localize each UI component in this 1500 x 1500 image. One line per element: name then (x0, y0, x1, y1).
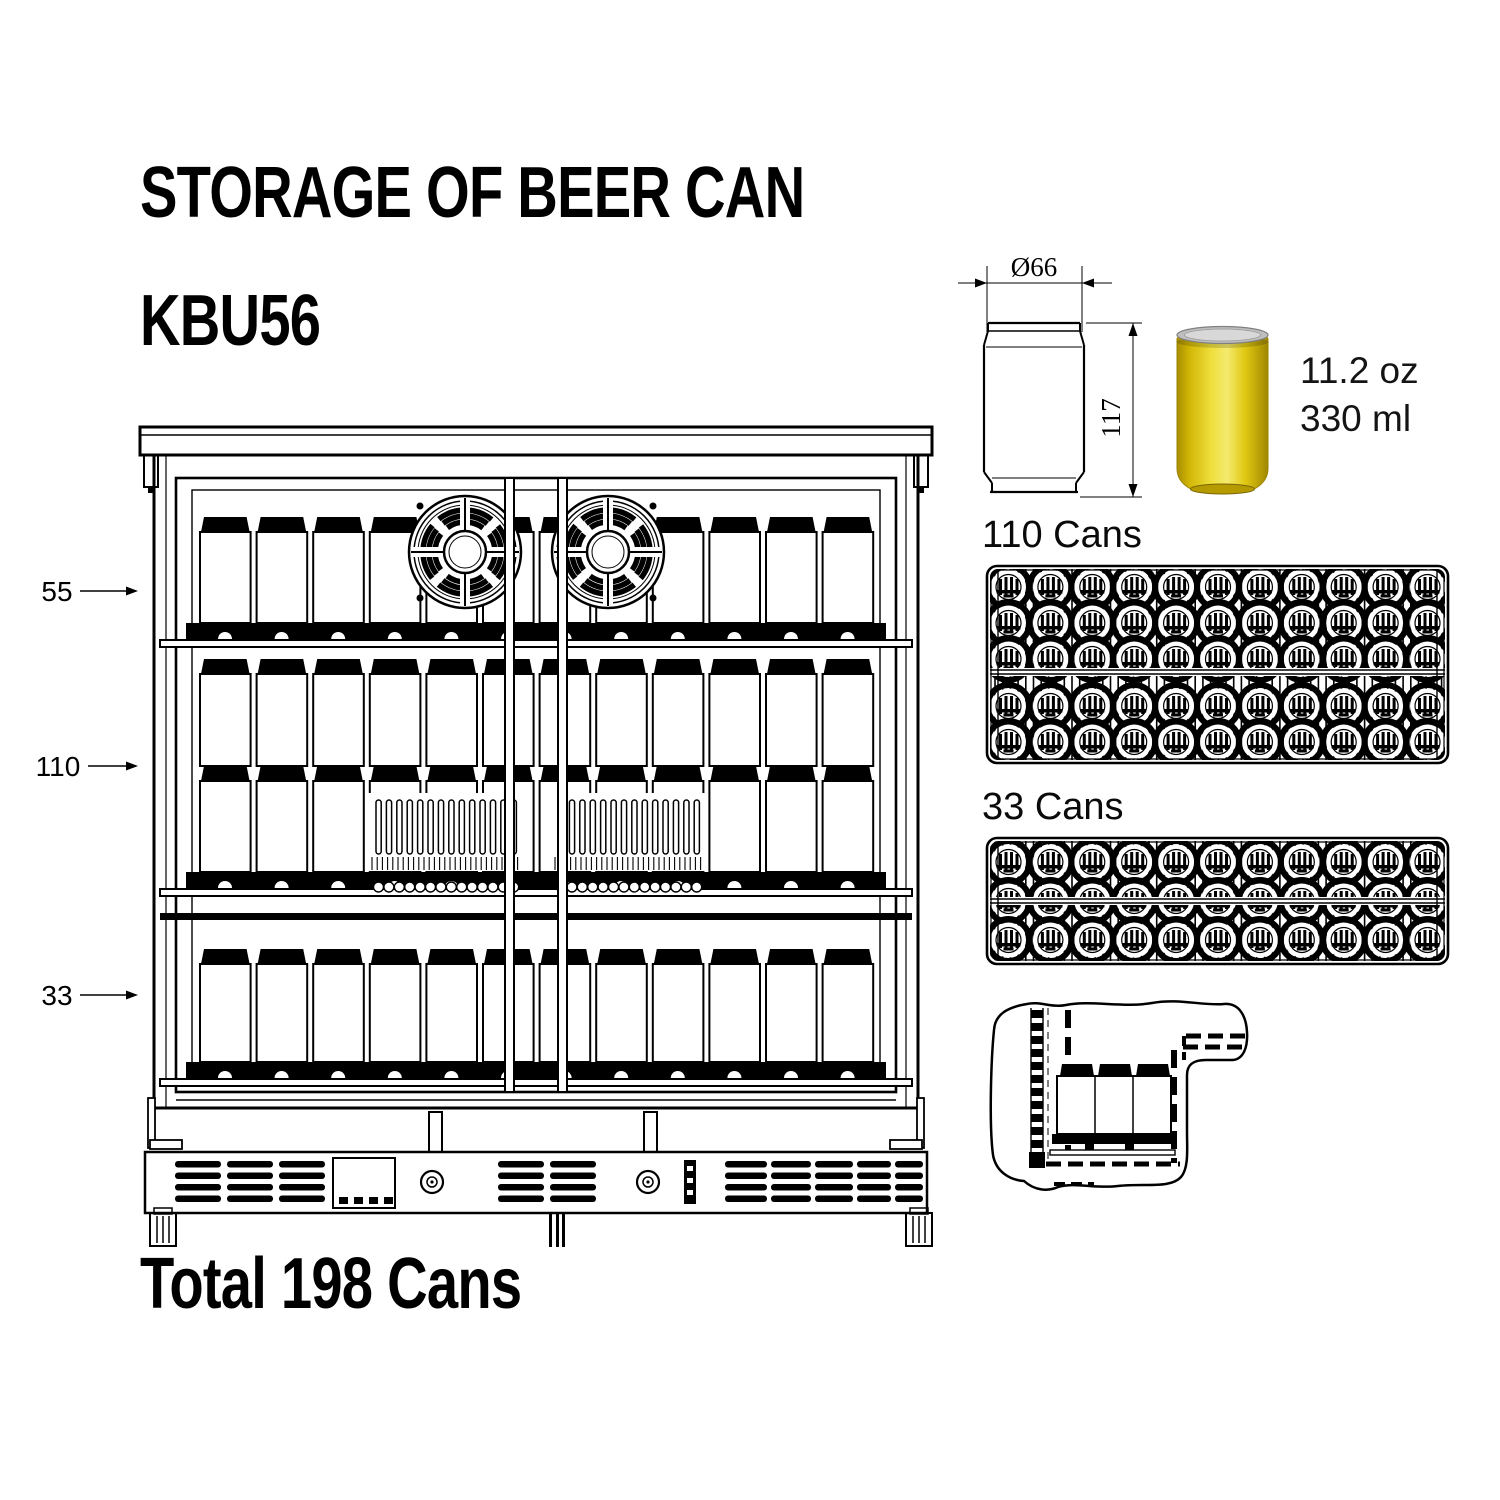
fridge-front-drawing (140, 427, 932, 1247)
beer-can-illustration (1177, 327, 1268, 495)
can-volume-oz: 11.2 oz (1300, 352, 1419, 389)
dim-middle-shelf-label: 110 (36, 751, 81, 782)
tray2-label: 33 Cans (982, 788, 1124, 826)
tray1-label: 110 Cans (982, 516, 1142, 554)
total-cans-label: Total 198 Cans (140, 1248, 521, 1320)
dim-top-shelf-label: 55 (41, 576, 72, 607)
tray-33-cans-drawing (987, 838, 1449, 964)
tray-110-cans-drawing (987, 566, 1449, 763)
page-title: STORAGE OF BEER CAN (140, 157, 804, 229)
dim-bottom-shelf-label: 33 (41, 980, 72, 1011)
spec-sheet-page: 55 110 33 Ø66 117 STORAGE OF BEER CAN KB… (0, 0, 1500, 1500)
shelf-corner-detail-drawing (991, 1001, 1247, 1189)
can-diameter-label: Ø66 (1011, 252, 1058, 282)
can-dimension-drawing: Ø66 117 (958, 252, 1142, 497)
can-height-label: 117 (1096, 398, 1126, 438)
model-number: KBU56 (140, 285, 320, 357)
can-volume-ml: 330 ml (1300, 400, 1411, 437)
fridge-dimension-labels: 55 110 33 (36, 576, 138, 1011)
